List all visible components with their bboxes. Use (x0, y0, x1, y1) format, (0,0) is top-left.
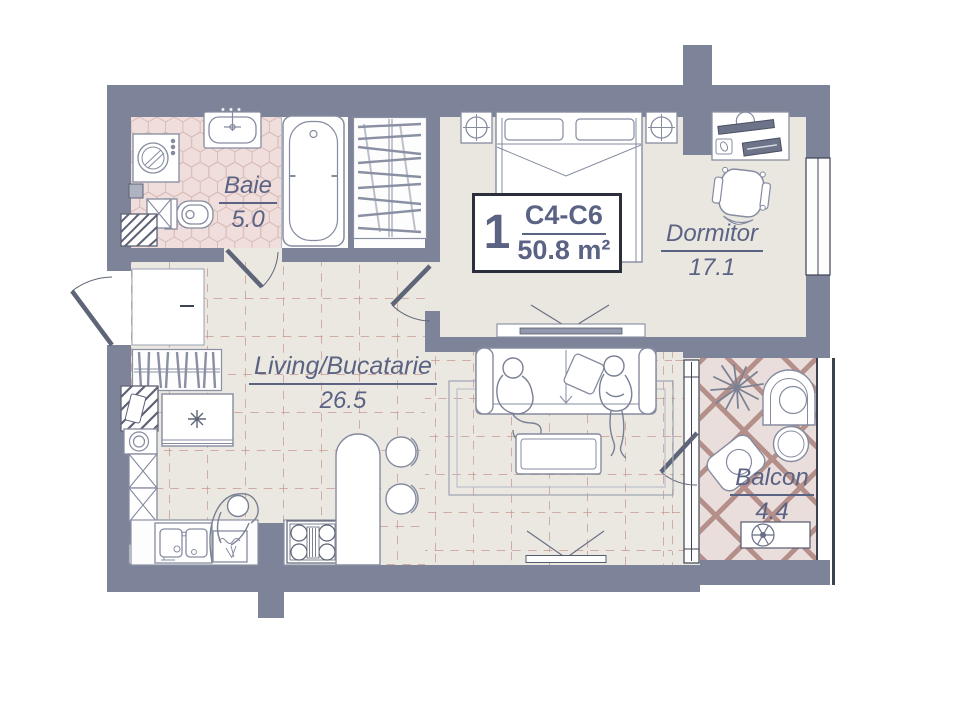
bedroom-window (806, 158, 830, 275)
mousepad (716, 139, 732, 154)
nightstand-right (646, 112, 677, 143)
office-chair (710, 166, 772, 227)
furniture-layer (0, 0, 957, 707)
kitchen-shaft (121, 386, 158, 431)
washing-machine (133, 134, 179, 182)
balcony-table (774, 427, 809, 462)
unit-code: C4-C6 (522, 200, 606, 234)
floor-plan: Baie 5.0 Dormitor 17.1 Living/Bucatarie … (0, 0, 957, 707)
unit-label: 1 C4-C6 50.8 m² (472, 193, 622, 273)
plant (711, 365, 763, 410)
balcony-window (684, 360, 699, 563)
bedroom-door (392, 266, 430, 321)
room-name: Dormitor (661, 220, 763, 252)
room-label-balcon: Balcon 4.4 (714, 464, 830, 525)
tv-bedroom (497, 305, 645, 337)
room-area: 5.0 (188, 204, 308, 234)
room-area: 26.5 (248, 385, 438, 415)
cabinet-pot (124, 429, 157, 454)
unit-code-area: C4-C6 50.8 m² (517, 200, 610, 265)
kitchen-sink (155, 523, 212, 563)
unit-number: 1 (484, 209, 511, 257)
tv-living (526, 531, 606, 563)
room-name: Balcon (730, 464, 813, 496)
room-label-living: Living/Bucatarie 26.5 (248, 352, 438, 414)
entry-wardrobe-hangers (133, 350, 222, 391)
room-label-dormitor: Dormitor 17.1 (637, 220, 787, 281)
room-area: 17.1 (637, 252, 787, 282)
closet-hangers (354, 118, 427, 239)
entry-door (72, 269, 204, 345)
room-area: 4.4 (714, 496, 830, 526)
bar-stools (386, 437, 418, 514)
room-name: Living/Bucatarie (249, 352, 437, 385)
cabinet-x-lower (129, 488, 157, 522)
coffee-table (516, 434, 601, 474)
stove (287, 521, 338, 563)
bar-counter (336, 434, 380, 565)
fridge (162, 394, 233, 446)
room-name: Baie (219, 172, 277, 204)
bathroom-sink (204, 108, 261, 149)
unit-area: 50.8 m² (517, 235, 610, 266)
balcony-chair-arch (763, 370, 815, 425)
desk (712, 109, 789, 160)
ac-unit (741, 522, 810, 548)
bathroom-shaft (121, 214, 157, 246)
nightstand-left (461, 112, 492, 143)
room-label-baie: Baie 5.0 (188, 172, 308, 233)
cabinet-x-upper (129, 454, 157, 488)
wall-box (129, 184, 143, 198)
